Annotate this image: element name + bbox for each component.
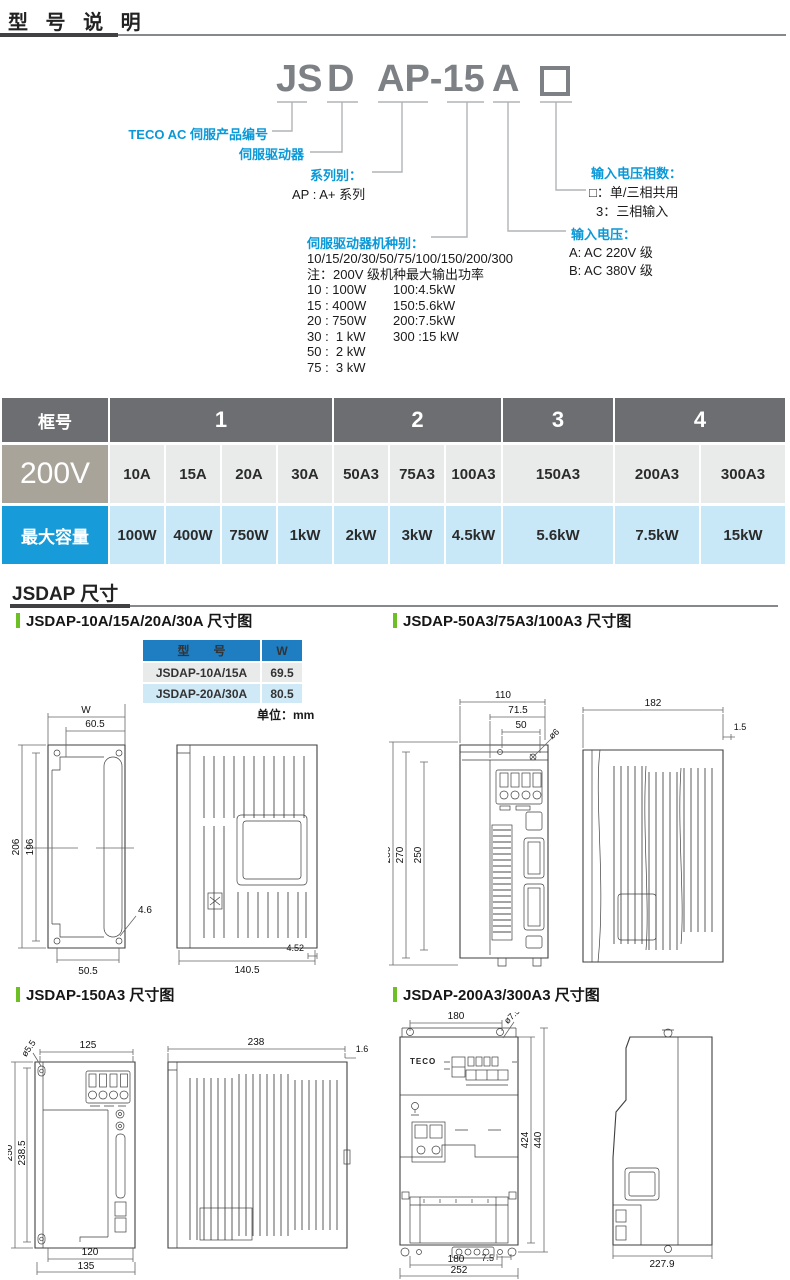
frame-group-2: 2 (334, 398, 501, 442)
dim-w3: 50 (515, 720, 527, 731)
type-row-right: 100:4.5kW (393, 282, 455, 298)
subheading-drawing4: JSDAP-200A3/300A3 尺寸图 (393, 984, 600, 1005)
subheading-text: JSDAP-50A3/75A3/100A3 尺寸图 (403, 610, 631, 631)
front-view-dimensions: 180 ø7.5 424 440 7.5 180 252 (400, 1012, 548, 1279)
dim-hole: ø5.5 (19, 1038, 38, 1058)
front-view-dimensions: 110 71.5 50 ø6 286 270 250 (388, 690, 561, 965)
model-cell: 15A (166, 445, 220, 503)
type-row-left: 10 : 100W (307, 282, 393, 298)
side-view (168, 1062, 350, 1248)
type-row: 50 : 2 kW (307, 344, 513, 360)
model-cell: 150A3 (503, 445, 613, 503)
side-view (583, 750, 723, 962)
capacity-cell: 1kW (278, 506, 332, 564)
model-cell: 100A3 (446, 445, 501, 503)
front-view (460, 745, 548, 966)
model-cell: 50A3 (334, 445, 388, 503)
label-series: 系列别： (310, 165, 362, 184)
green-bar-icon (16, 613, 20, 628)
side-view-dimensions: 238 1.6 (168, 1037, 368, 1062)
dim-h3: 250 (413, 846, 424, 863)
capacity-cell: 100W (110, 506, 164, 564)
page-title: 型 号 说 明 (8, 6, 147, 35)
title-rule-thin (118, 34, 786, 36)
dim-inner-height: 196 (25, 838, 36, 855)
section-rule-thick (10, 604, 130, 608)
side-view (177, 745, 317, 948)
subheading-drawing1: JSDAP-10A/15A/20A/30A 尺寸图 (16, 610, 252, 631)
label-product-number: TECO AC 伺服产品编号 (102, 124, 268, 143)
capacity-cell: 15kW (701, 506, 785, 564)
dim-top: 180 (448, 1012, 465, 1022)
side-view (613, 1029, 712, 1253)
dim-bottom: 50.5 (78, 966, 98, 977)
dim-b0: 7.5 (481, 1253, 494, 1263)
type-row: 75 : 3 kW (307, 360, 513, 376)
label-voltage: 输入电压： (571, 224, 636, 243)
subheading-drawing2: JSDAP-50A3/75A3/100A3 尺寸图 (393, 610, 631, 631)
model-cell: 200A3 (615, 445, 699, 503)
green-bar-icon (16, 987, 20, 1002)
type-row-left: 75 : 3 kW (307, 360, 393, 376)
capacity-cell: 2kW (334, 506, 388, 564)
title-rule-thick (0, 33, 118, 37)
dim-hole: ø6 (547, 727, 562, 741)
capacity-cell: 400W (166, 506, 220, 564)
frame-group-3: 3 (503, 398, 613, 442)
section-rule-thin (130, 605, 778, 607)
subheading-text: JSDAP-200A3/300A3 尺寸图 (403, 984, 600, 1005)
dim-h1: 286 (388, 846, 393, 863)
dimensions-section-title: JSDAP 尺寸 (12, 579, 118, 606)
voltage-class-label: 200V (2, 445, 108, 503)
phase-option-1: □：单/三相共用 (589, 182, 678, 201)
dim-h2: 238.5 (17, 1140, 28, 1165)
subheading-drawing3: JSDAP-150A3 尺寸图 (16, 984, 174, 1005)
dim-depth: 227.9 (649, 1259, 674, 1270)
drive-type-list: 10/15/20/30/50/75/100/150/200/300 注：200V… (307, 251, 513, 375)
dim-hole: 4.6 (138, 905, 152, 916)
label-servo-drive: 伺服驱动器 (186, 144, 304, 163)
dimension-drawing-150a3: ø5.5 125 250 238.5 120 135 238 1.6 (8, 1035, 388, 1280)
type-codes: 10/15/20/30/50/75/100/150/200/300 (307, 251, 513, 267)
dim-h2: 270 (395, 846, 406, 863)
label-phase: 输入电压相数： (591, 163, 682, 182)
dimension-drawing-200a3-300a3: TECO 180 ø7.5 424 440 7.5 180 252 227.9 (393, 1012, 790, 1280)
voltage-option-2: B: AC 380V 级 (569, 260, 653, 279)
dim-h1: 250 (8, 1144, 15, 1161)
phase-option-2: 3：三相输入 (596, 201, 668, 220)
capacity-cell: 7.5kW (615, 506, 699, 564)
dim-thickness: 1.5 (734, 722, 747, 732)
front-view: TECO (400, 1028, 518, 1258)
model-cell: 75A3 (390, 445, 444, 503)
width-table-header-w: W (262, 640, 302, 661)
subheading-text: JSDAP-150A3 尺寸图 (26, 984, 174, 1005)
type-row: 30 : 1 kW300 :15 kW (307, 329, 513, 345)
frame-header: 框号 (2, 398, 108, 442)
model-cell: 300A3 (701, 445, 785, 503)
type-row-right: 300 :15 kW (393, 329, 459, 345)
dim-b1: 120 (82, 1247, 99, 1258)
width-table: 型 号 W JSDAP-10A/15A 69.5 JSDAP-20A/30A 8… (143, 640, 302, 703)
model-cell: 30A (278, 445, 332, 503)
capacity-cell: 3kW (390, 506, 444, 564)
dimension-drawing-10a-30a: W 60.5 206 196 4.6 50.5 140.5 4.52 (0, 700, 400, 985)
green-bar-icon (393, 613, 397, 628)
display-panel (444, 1057, 517, 1085)
dim-width: W (81, 705, 91, 716)
subheading-text: JSDAP-10A/15A/20A/30A 尺寸图 (26, 610, 252, 631)
dim-depth: 182 (645, 698, 662, 709)
model-cell: 10A (110, 445, 164, 503)
type-row: 10 : 100W100:4.5kW (307, 282, 513, 298)
dimension-drawing-50a3-100a3: 110 71.5 50 ø6 286 270 250 182 1.5 (388, 645, 790, 980)
dim-b2: 135 (78, 1261, 95, 1272)
side-view-dimensions: 227.9 (613, 1245, 712, 1270)
capacity-cell: 4.5kW (446, 506, 501, 564)
dim-thickness: 1.6 (356, 1044, 369, 1054)
side-view-dimensions: 182 1.5 (583, 698, 746, 748)
dim-b1: 180 (448, 1254, 465, 1265)
type-row-left: 50 : 2 kW (307, 344, 393, 360)
capacity-cell: 5.6kW (503, 506, 613, 564)
frame-group-1: 1 (110, 398, 332, 442)
dim-b2: 252 (451, 1265, 468, 1276)
dim-thickness: 4.52 (286, 943, 304, 953)
teco-logo: TECO (410, 1057, 436, 1066)
dim-w1: 110 (495, 690, 511, 701)
model-cell: 20A (222, 445, 276, 503)
capacity-table: 框号 1 2 3 4 200V 10A 15A 20A 30A 50A3 75A… (2, 398, 788, 564)
front-view (35, 1062, 135, 1248)
series-value: AP : A+ 系列 (292, 184, 365, 203)
type-row-left: 20 : 750W (307, 313, 393, 329)
type-row-right: 150:5.6kW (393, 298, 455, 314)
width-table-model: JSDAP-10A/15A (143, 663, 260, 682)
voltage-option-1: A: AC 220V 级 (569, 242, 653, 261)
capacity-cell: 750W (222, 506, 276, 564)
label-drive-type: 伺服驱动器机种别： (307, 233, 424, 252)
type-row: 15 : 400W150:5.6kW (307, 298, 513, 314)
capacity-header: 最大容量 (2, 506, 108, 564)
dim-hole: ø7.5 (502, 1012, 522, 1026)
dim-depth: 238 (248, 1037, 265, 1048)
dim-depth: 140.5 (234, 965, 259, 976)
green-bar-icon (393, 987, 397, 1002)
dim-top: 60.5 (85, 719, 105, 730)
dim-height: 206 (11, 838, 22, 855)
type-row-left: 15 : 400W (307, 298, 393, 314)
dim-top: 125 (80, 1040, 97, 1051)
type-row-right: 200:7.5kW (393, 313, 455, 329)
dim-h2: 440 (533, 1131, 544, 1148)
back-view (24, 745, 134, 948)
dim-h1: 424 (520, 1131, 531, 1148)
frame-group-4: 4 (615, 398, 785, 442)
width-table-value: 69.5 (262, 663, 302, 682)
dim-w2: 71.5 (508, 705, 528, 716)
type-note: 注：200V 级机种最大输出功率 (307, 267, 513, 283)
type-row: 20 : 750W200:7.5kW (307, 313, 513, 329)
width-table-header-model: 型 号 (143, 640, 260, 661)
type-row-left: 30 : 1 kW (307, 329, 393, 345)
